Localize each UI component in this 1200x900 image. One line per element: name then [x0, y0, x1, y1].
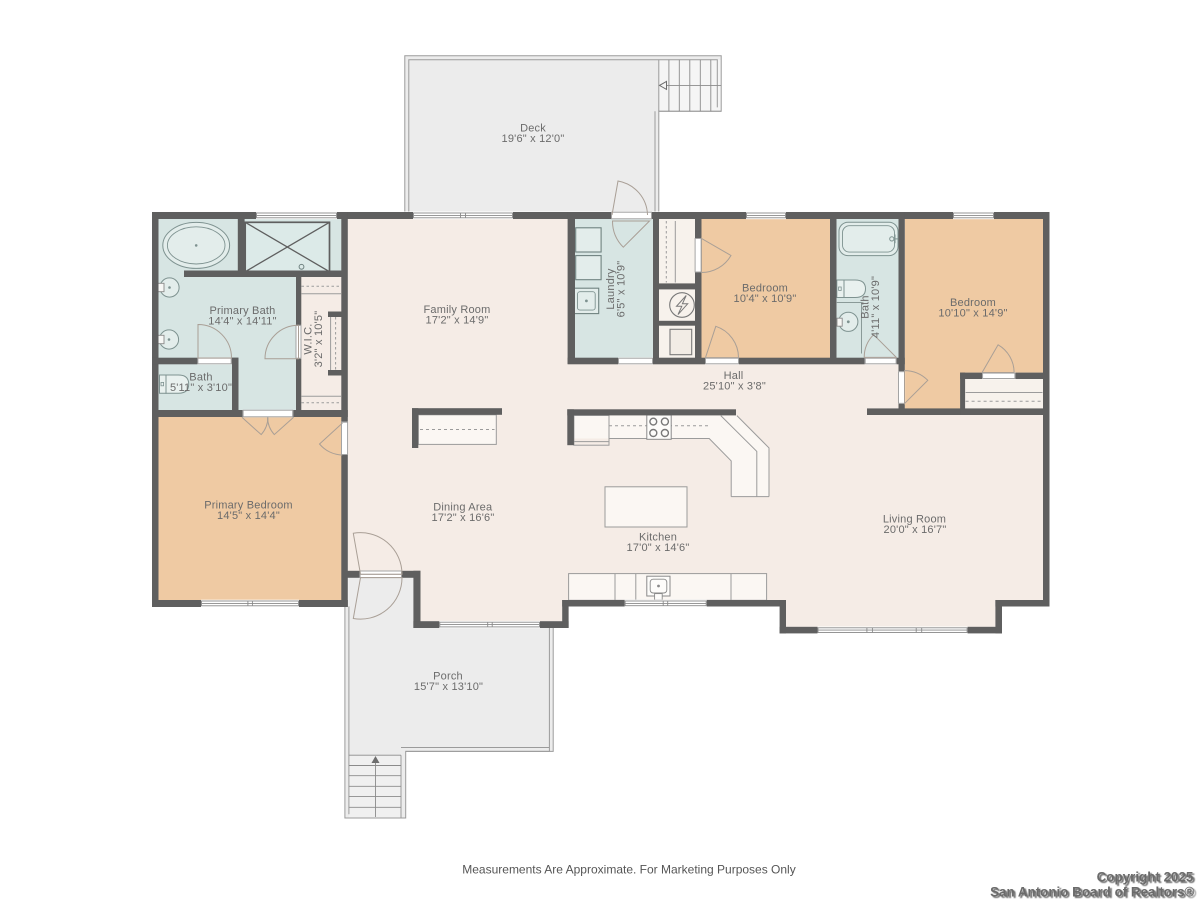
svg-text:15'7" x 13'10": 15'7" x 13'10"	[414, 681, 483, 693]
svg-text:4'11" x 10'9": 4'11" x 10'9"	[870, 276, 882, 338]
svg-text:Measurements Are Approximate.: Measurements Are Approximate. For Market…	[462, 863, 795, 877]
svg-text:5'11" x 3'10": 5'11" x 3'10"	[170, 382, 232, 394]
svg-text:17'0" x 14'6": 17'0" x 14'6"	[627, 542, 690, 554]
svg-text:17'2" x 16'6": 17'2" x 16'6"	[432, 512, 495, 524]
svg-text:6'5" x 10'9": 6'5" x 10'9"	[616, 261, 628, 318]
svg-text:3'2" x 10'5": 3'2" x 10'5"	[313, 311, 325, 368]
svg-text:Copyright 2025: Copyright 2025	[1097, 869, 1194, 884]
svg-text:17'2" x 14'9": 17'2" x 14'9"	[426, 315, 489, 327]
svg-text:14'4" x 14'11": 14'4" x 14'11"	[208, 316, 276, 328]
svg-text:19'6" x 12'0": 19'6" x 12'0"	[502, 133, 565, 145]
svg-text:10'4" x 10'9": 10'4" x 10'9"	[734, 293, 797, 305]
svg-text:20'0" x 16'7": 20'0" x 16'7"	[884, 524, 947, 536]
svg-text:10'10" x 14'9": 10'10" x 14'9"	[938, 308, 1007, 320]
svg-text:14'5" x 14'4": 14'5" x 14'4"	[217, 510, 280, 522]
svg-text:San Antonio Board of Realtors®: San Antonio Board of Realtors®	[990, 884, 1194, 899]
svg-text:25'10" x 3'8": 25'10" x 3'8"	[703, 381, 766, 393]
